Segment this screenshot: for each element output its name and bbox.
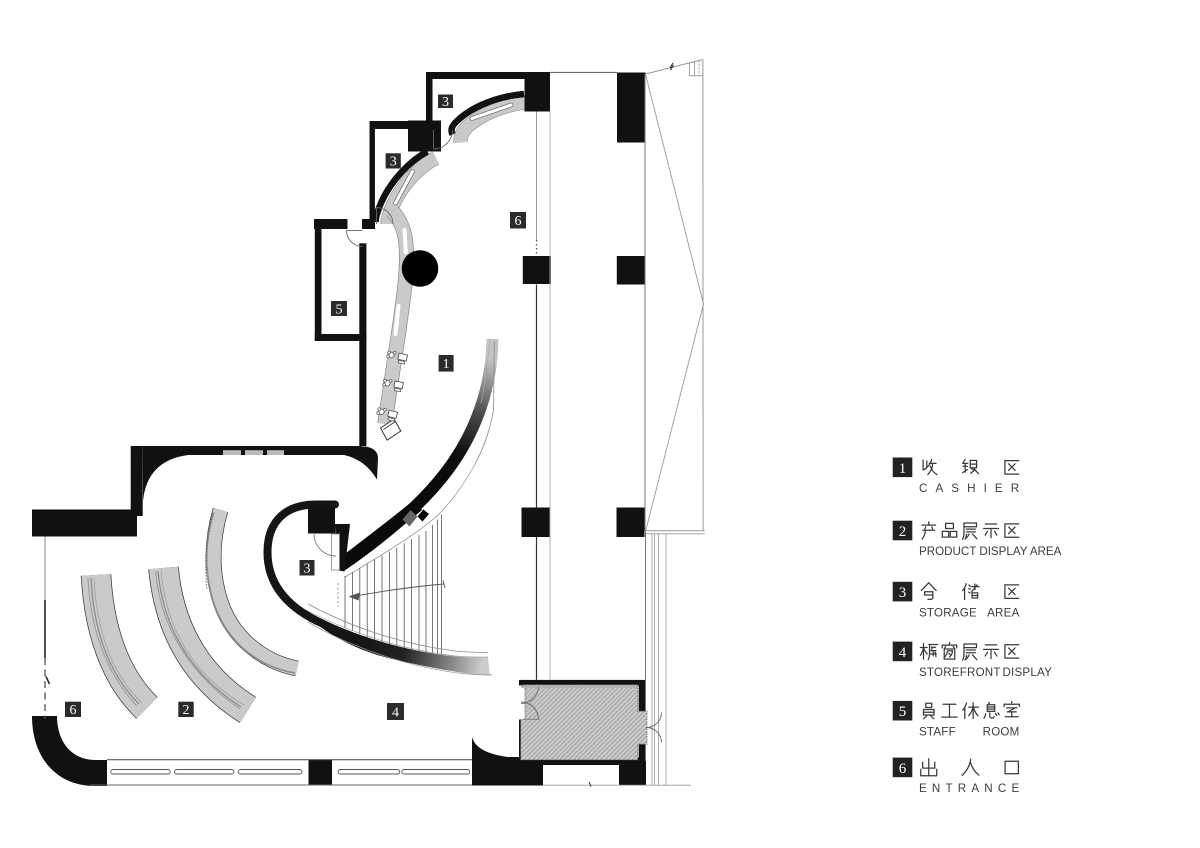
svg-text:AREA: AREA — [987, 606, 1019, 619]
svg-text:STAFF: STAFF — [919, 725, 956, 738]
svg-text:3: 3 — [390, 155, 397, 170]
svg-text:ROOM: ROOM — [983, 725, 1020, 738]
svg-text:DISPLAY: DISPLAY — [1002, 666, 1052, 679]
svg-text:4: 4 — [899, 645, 907, 661]
svg-text:STOREFRONT: STOREFRONT — [919, 666, 1001, 679]
svg-text:4: 4 — [392, 705, 399, 720]
svg-text:2: 2 — [899, 524, 907, 540]
svg-text:3: 3 — [442, 95, 449, 110]
svg-text:5: 5 — [336, 302, 343, 317]
svg-text:6: 6 — [899, 761, 907, 777]
svg-text:STORAGE: STORAGE — [919, 606, 977, 619]
svg-text:6: 6 — [515, 214, 522, 229]
svg-text:ENTRANCE: ENTRANCE — [919, 782, 1024, 795]
svg-text:CASHIER: CASHIER — [919, 482, 1027, 495]
svg-text:6: 6 — [70, 703, 77, 718]
svg-text:PRODUCT DISPLAY AREA: PRODUCT DISPLAY AREA — [919, 545, 1062, 558]
svg-text:5: 5 — [899, 704, 907, 720]
svg-text:1: 1 — [899, 461, 907, 477]
svg-text:3: 3 — [304, 562, 311, 577]
svg-text:2: 2 — [183, 703, 190, 718]
svg-text:1: 1 — [443, 357, 450, 372]
svg-text:3: 3 — [899, 585, 907, 601]
